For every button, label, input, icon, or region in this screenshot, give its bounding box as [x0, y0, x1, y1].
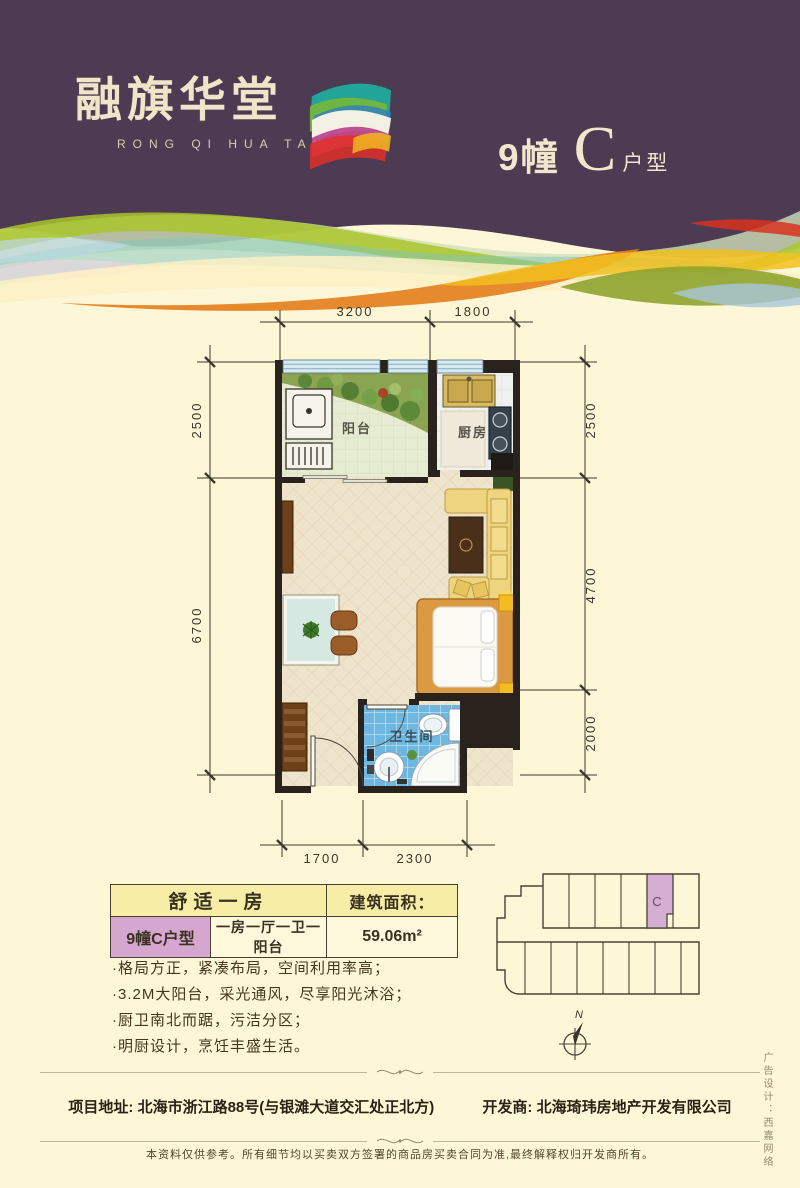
dim-bottom-1: 1700 [304, 851, 341, 866]
dim-top-1: 3200 [337, 305, 374, 319]
building-keyplan: C [485, 866, 715, 1001]
dim-right-3: 2000 [583, 715, 598, 752]
developer-name: 开发商: 北海琦玮房地产开发有限公司 [482, 1099, 731, 1116]
dim-left-1: 2500 [189, 402, 204, 439]
unit-type-suffix: 户型 [622, 147, 670, 177]
dim-left-2: 6700 [189, 607, 204, 644]
disclaimer-text: 本资料仅供参考。所有细节均以买卖双方签署的商品房买卖合同为准,最终解释权归开发商… [0, 1146, 800, 1162]
balcony-laundry-fixtures [286, 389, 332, 469]
bathroom-label: 卫生间 [389, 729, 434, 744]
tv-cabinet [282, 501, 293, 573]
dim-right-1: 2500 [583, 402, 598, 439]
floorplan-diagram: 阳台 厨房 卫生间 3200 1800 2500 6700 2500 4700 … [165, 305, 635, 870]
wave-decoration [0, 185, 800, 315]
divider-ornament-icon [375, 1066, 425, 1078]
unit-name-cell: 9幢C户型 [111, 917, 211, 958]
sofa [445, 477, 513, 605]
project-address: 项目地址: 北海市浙江路88号(与银滩大道交汇处正北方) [68, 1099, 434, 1116]
unit-info-table: 舒适一房 建筑面积： 9幢C户型 一房一厅一卫一阳台 59.06m² [110, 884, 458, 958]
flag-logo-icon [302, 76, 396, 176]
flyer-page: 融旗华堂 RONG QI HUA TANG 9幢 C 户型 [0, 0, 800, 1188]
dim-top-2: 1800 [455, 305, 492, 319]
north-arrow-icon: N [552, 1006, 598, 1068]
unit-title: 9幢 C 户型 [498, 112, 670, 186]
unit-headline: 舒适一房 [111, 885, 327, 917]
feature-list: ·格局方正，紧凑布局，空间利用率高； ·3.2M大阳台，采光通风，尽享阳光沐浴；… [112, 956, 411, 1060]
unit-letter: C [574, 112, 617, 186]
unit-building: 9幢 [498, 127, 560, 181]
feature-item: ·明厨设计，烹饪丰盛生活。 [112, 1034, 411, 1060]
north-label: N [575, 1009, 583, 1021]
bed [417, 591, 519, 701]
footer-divider-top [40, 1066, 760, 1078]
balcony-label: 阳台 [342, 421, 372, 436]
feature-item: ·厨卫南北而踞，污洁分区； [112, 1008, 411, 1034]
footer-contact-line: 项目地址: 北海市浙江路88号(与银滩大道交汇处正北方) 开发商: 北海琦玮房地… [0, 1096, 800, 1117]
feature-item: ·3.2M大阳台，采光通风，尽享阳光沐浴； [112, 982, 411, 1008]
design-credit: 广告设计：西嘉网络 [759, 1052, 774, 1169]
area-value-cell: 59.06m² [327, 917, 458, 958]
dim-bottom-2: 2300 [397, 851, 434, 866]
area-label: 建筑面积： [327, 885, 458, 917]
keyplan-unit-label: C [652, 894, 661, 909]
feature-item: ·格局方正，紧凑布局，空间利用率高； [112, 956, 411, 982]
layout-cell: 一房一厅一卫一阳台 [211, 917, 327, 958]
kitchen-label: 厨房 [458, 425, 488, 440]
dim-right-2: 4700 [583, 567, 598, 604]
shoe-shelf [282, 703, 307, 771]
